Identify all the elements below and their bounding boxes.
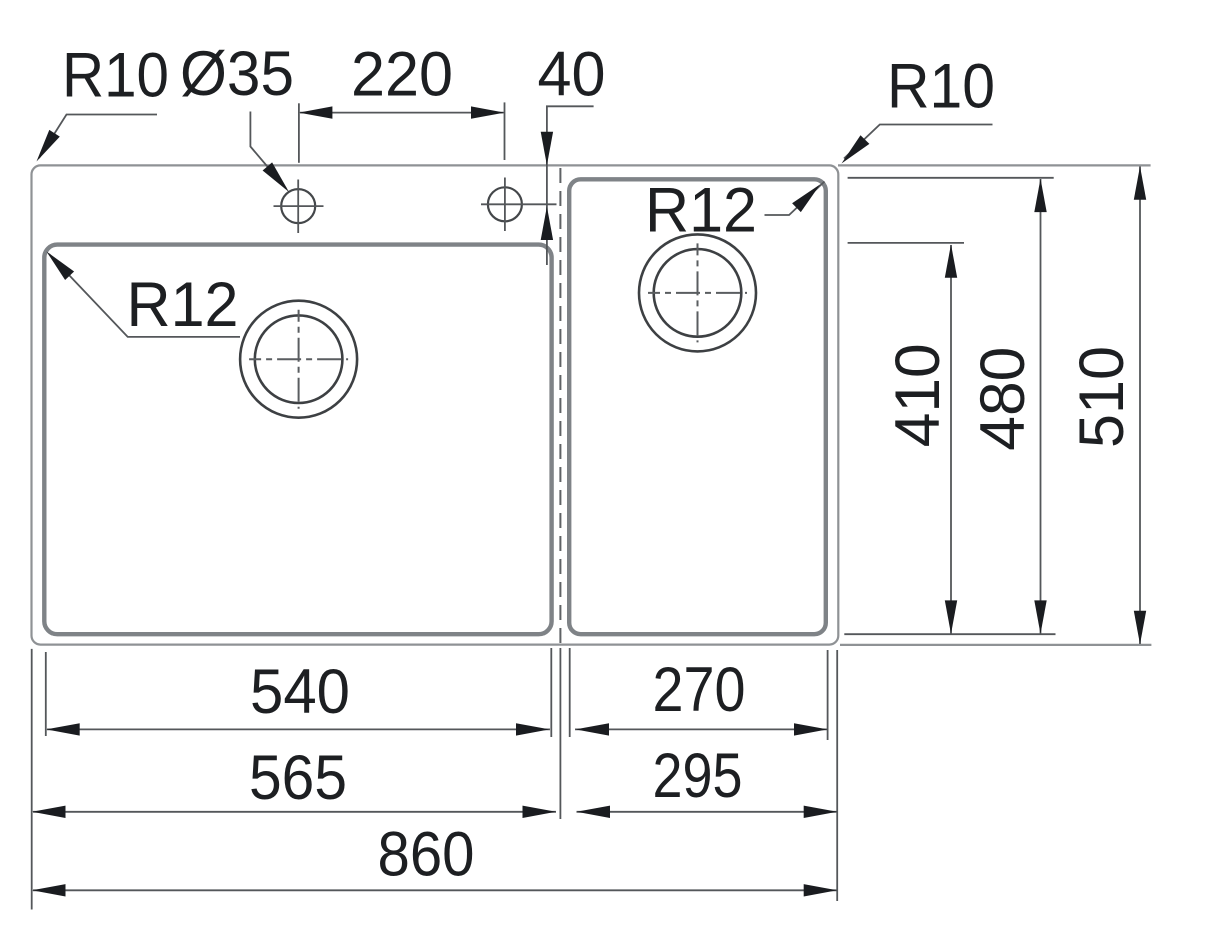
svg-text:295: 295 [653, 741, 743, 811]
svg-text:540: 540 [250, 657, 350, 727]
svg-text:Ø35: Ø35 [180, 39, 294, 109]
svg-text:860: 860 [378, 820, 475, 890]
svg-text:410: 410 [883, 343, 953, 447]
svg-text:R12: R12 [127, 270, 239, 340]
svg-text:40: 40 [538, 40, 606, 110]
svg-text:480: 480 [968, 347, 1038, 451]
svg-text:R10: R10 [62, 41, 169, 111]
svg-text:220: 220 [351, 40, 453, 110]
svg-text:565: 565 [249, 743, 347, 813]
svg-text:R10: R10 [887, 51, 995, 121]
svg-text:270: 270 [653, 655, 746, 725]
svg-text:510: 510 [1067, 346, 1137, 448]
svg-text:R12: R12 [645, 176, 757, 246]
